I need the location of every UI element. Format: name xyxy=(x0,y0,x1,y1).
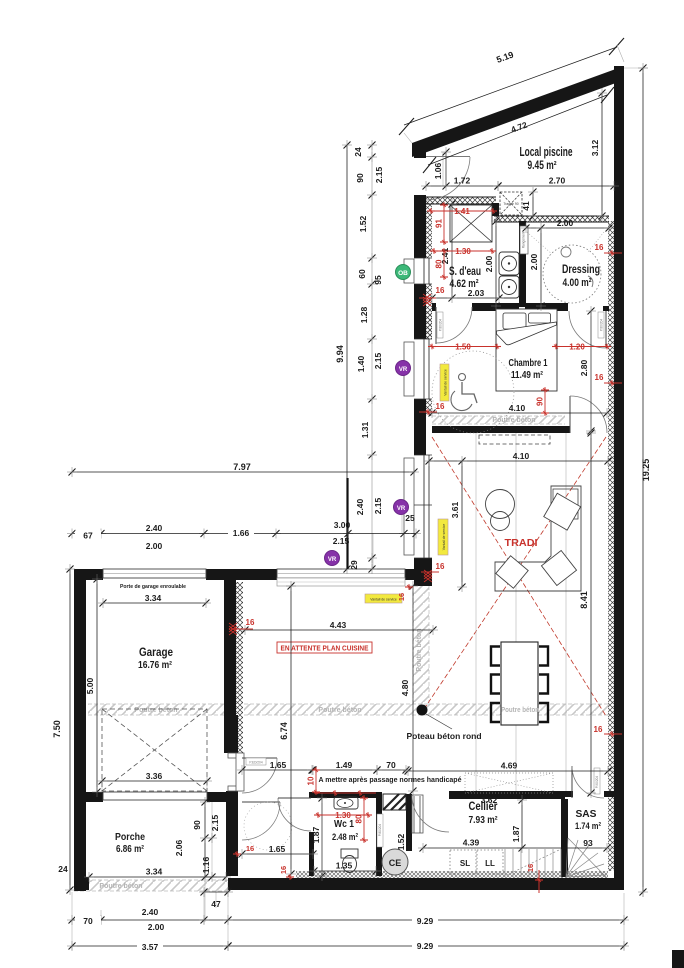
svg-text:CE: CE xyxy=(389,858,402,868)
svg-text:16: 16 xyxy=(594,725,603,734)
svg-text:Poutre béton: Poutre béton xyxy=(501,707,539,714)
svg-text:S. d'eau: S. d'eau xyxy=(449,266,481,278)
svg-text:Poutre béton: Poutre béton xyxy=(416,628,423,671)
svg-text:3.34: 3.34 xyxy=(145,593,162,603)
svg-text:4.10: 4.10 xyxy=(509,403,526,413)
svg-text:16.76 m²: 16.76 m² xyxy=(138,659,172,671)
svg-text:2.70: 2.70 xyxy=(549,176,566,186)
svg-text:1.72: 1.72 xyxy=(454,176,471,186)
svg-text:6.86 m²: 6.86 m² xyxy=(116,844,145,855)
svg-text:3.61: 3.61 xyxy=(450,501,460,518)
svg-text:19.25: 19.25 xyxy=(641,459,651,482)
svg-text:P.ED/204: P.ED/204 xyxy=(249,761,262,765)
svg-text:67: 67 xyxy=(83,531,93,541)
svg-text:Poteau béton rond: Poteau béton rond xyxy=(406,731,481,741)
svg-text:4.43: 4.43 xyxy=(330,620,347,630)
svg-text:11.49 m²: 11.49 m² xyxy=(511,370,544,381)
svg-text:7.93 m²: 7.93 m² xyxy=(469,814,498,826)
svg-text:1.31: 1.31 xyxy=(360,421,370,438)
svg-text:1.52: 1.52 xyxy=(358,215,368,232)
svg-text:16: 16 xyxy=(246,618,255,627)
svg-text:Rangement: Rangement xyxy=(522,232,526,249)
svg-text:16: 16 xyxy=(436,286,445,295)
svg-text:1.06: 1.06 xyxy=(433,162,443,179)
svg-text:4.39: 4.39 xyxy=(463,838,480,848)
svg-text:3.12: 3.12 xyxy=(590,139,600,156)
svg-text:1.35: 1.35 xyxy=(336,861,353,871)
svg-text:16: 16 xyxy=(436,562,445,571)
svg-text:93: 93 xyxy=(583,838,593,848)
svg-text:16: 16 xyxy=(595,373,604,382)
svg-text:24: 24 xyxy=(58,864,68,874)
svg-text:9.29: 9.29 xyxy=(417,916,434,926)
svg-text:1.20: 1.20 xyxy=(569,343,585,352)
svg-text:2.00: 2.00 xyxy=(148,922,165,932)
svg-text:2.15: 2.15 xyxy=(333,536,350,546)
svg-text:2.06: 2.06 xyxy=(174,839,184,856)
svg-text:2.15: 2.15 xyxy=(210,814,220,831)
svg-text:3.36: 3.36 xyxy=(146,771,163,781)
svg-text:4.69: 4.69 xyxy=(501,761,518,771)
svg-text:1.74 m²: 1.74 m² xyxy=(575,821,601,832)
svg-text:9.29: 9.29 xyxy=(417,941,434,951)
svg-text:5.00: 5.00 xyxy=(85,677,95,694)
svg-text:1.65: 1.65 xyxy=(270,760,287,770)
svg-text:1.87: 1.87 xyxy=(511,825,521,842)
svg-text:10: 10 xyxy=(307,776,316,785)
svg-text:TRADI: TRADI xyxy=(505,537,538,549)
svg-text:VR: VR xyxy=(328,557,337,563)
svg-text:A mettre après passage normes: A mettre après passage normes handicapé xyxy=(319,777,462,784)
svg-text:4.00 m²: 4.00 m² xyxy=(563,277,592,289)
svg-text:2.15: 2.15 xyxy=(373,497,383,514)
svg-text:70: 70 xyxy=(83,916,93,926)
svg-text:Wc 1: Wc 1 xyxy=(334,819,354,830)
svg-text:Poutre béton: Poutre béton xyxy=(318,707,361,714)
svg-text:47: 47 xyxy=(211,899,221,909)
svg-text:2.00: 2.00 xyxy=(484,255,494,272)
svg-text:90: 90 xyxy=(355,173,365,183)
svg-text:VR: VR xyxy=(399,367,408,373)
svg-text:3.57: 3.57 xyxy=(142,942,159,952)
svg-text:P.80/204: P.80/204 xyxy=(378,824,382,837)
svg-text:4.80: 4.80 xyxy=(400,679,410,696)
svg-text:16: 16 xyxy=(397,593,406,601)
svg-text:1.40: 1.40 xyxy=(356,355,366,372)
svg-text:16: 16 xyxy=(526,864,535,872)
svg-text:9.45 m²: 9.45 m² xyxy=(528,160,557,172)
svg-text:3.00: 3.00 xyxy=(334,520,351,530)
svg-text:2.03: 2.03 xyxy=(468,288,485,298)
svg-text:3.34: 3.34 xyxy=(146,867,163,877)
svg-text:Porche: Porche xyxy=(115,831,145,843)
svg-text:80: 80 xyxy=(355,814,364,823)
svg-text:Porte de garage enroulable: Porte de garage enroulable xyxy=(120,584,186,590)
svg-text:3.62: 3.62 xyxy=(481,795,498,805)
svg-text:29: 29 xyxy=(349,560,359,570)
svg-text:1.52: 1.52 xyxy=(396,833,406,850)
svg-text:Vantail de service: Vantail de service xyxy=(442,524,446,551)
svg-text:2.00: 2.00 xyxy=(529,253,539,270)
svg-text:41: 41 xyxy=(521,201,531,211)
svg-text:25: 25 xyxy=(405,513,415,523)
svg-text:16: 16 xyxy=(595,243,604,252)
svg-text:OB: OB xyxy=(398,270,408,277)
svg-text:91: 91 xyxy=(435,219,444,228)
svg-text:9.94: 9.94 xyxy=(335,345,345,363)
svg-text:2.00: 2.00 xyxy=(557,218,574,228)
svg-text:90: 90 xyxy=(536,397,545,406)
svg-text:1.16: 1.16 xyxy=(201,856,211,873)
svg-text:1.49: 1.49 xyxy=(336,760,353,770)
svg-text:1.87: 1.87 xyxy=(311,826,321,843)
svg-text:Poutre béton: Poutre béton xyxy=(134,707,177,714)
svg-text:16: 16 xyxy=(436,402,445,411)
svg-text:EN ATTENTE PLAN CUISINE: EN ATTENTE PLAN CUISINE xyxy=(281,644,369,653)
svg-text:P.90/204: P.90/204 xyxy=(595,776,599,789)
svg-text:16: 16 xyxy=(246,844,254,853)
svg-text:1.30: 1.30 xyxy=(335,811,351,820)
svg-text:80: 80 xyxy=(435,259,444,268)
svg-text:60: 60 xyxy=(357,269,367,279)
svg-text:24: 24 xyxy=(353,147,363,157)
svg-text:Chambre 1: Chambre 1 xyxy=(509,357,548,369)
svg-text:2.15: 2.15 xyxy=(374,166,384,183)
svg-text:Poutre béton: Poutre béton xyxy=(492,417,535,424)
svg-text:1.65: 1.65 xyxy=(269,844,286,854)
svg-text:2.40: 2.40 xyxy=(355,498,365,515)
svg-text:95: 95 xyxy=(373,275,383,285)
svg-text:SAS: SAS xyxy=(576,808,597,820)
svg-text:2.00: 2.00 xyxy=(146,541,163,551)
svg-text:2.15: 2.15 xyxy=(373,352,383,369)
svg-text:SL: SL xyxy=(460,859,470,868)
svg-text:1.28: 1.28 xyxy=(359,306,369,323)
svg-text:8.41: 8.41 xyxy=(579,591,589,609)
svg-text:Trappe 90: Trappe 90 xyxy=(503,202,518,206)
svg-text:1.66: 1.66 xyxy=(233,528,250,538)
svg-text:Poutre béton: Poutre béton xyxy=(99,883,142,890)
svg-text:2.48 m²: 2.48 m² xyxy=(332,832,358,843)
svg-text:7.50: 7.50 xyxy=(52,720,62,738)
svg-text:2.40: 2.40 xyxy=(146,523,163,533)
svg-text:7.97: 7.97 xyxy=(233,462,251,472)
svg-text:1.50: 1.50 xyxy=(455,343,471,352)
svg-text:6.74: 6.74 xyxy=(279,722,289,740)
svg-text:P.80/204: P.80/204 xyxy=(439,319,443,332)
svg-text:Local piscine: Local piscine xyxy=(520,145,573,159)
svg-text:LL: LL xyxy=(485,859,495,868)
svg-text:Garage: Garage xyxy=(139,647,173,659)
svg-text:70: 70 xyxy=(386,760,396,770)
svg-text:Vantail de service: Vantail de service xyxy=(370,598,397,602)
svg-text:2.80: 2.80 xyxy=(579,359,589,376)
svg-text:P.80/204: P.80/204 xyxy=(600,319,604,332)
svg-text:2.40: 2.40 xyxy=(142,907,159,917)
svg-text:4.10: 4.10 xyxy=(513,451,530,461)
svg-text:1.41: 1.41 xyxy=(454,207,470,216)
svg-text:Dressing: Dressing xyxy=(562,264,600,276)
svg-text:16: 16 xyxy=(279,866,288,874)
svg-text:VR: VR xyxy=(397,506,406,512)
svg-text:90: 90 xyxy=(192,820,202,830)
svg-text:1.30: 1.30 xyxy=(455,247,471,256)
svg-text:Vantail de service: Vantail de service xyxy=(444,369,448,396)
